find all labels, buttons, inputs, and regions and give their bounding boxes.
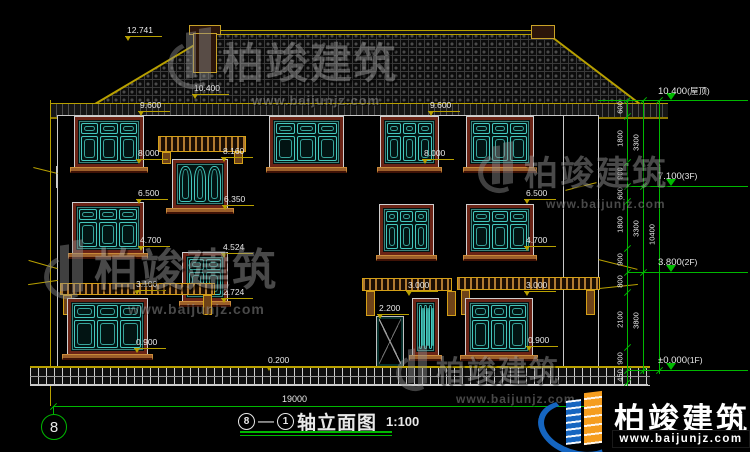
balcony-window bbox=[173, 160, 227, 208]
window-lattice bbox=[79, 121, 139, 163]
chain-dim-text: 600 bbox=[616, 93, 625, 123]
dim-line bbox=[659, 100, 660, 374]
dim-label: 8.000 bbox=[422, 149, 454, 160]
window-lattice bbox=[417, 303, 434, 351]
window-pane bbox=[429, 305, 432, 349]
window-3f-center-left bbox=[270, 117, 343, 167]
window-pane bbox=[74, 320, 95, 348]
left-bracket bbox=[33, 167, 57, 174]
window-pane bbox=[120, 123, 137, 134]
dim-line bbox=[627, 100, 628, 386]
chain-dim-text: 1800 bbox=[616, 209, 625, 239]
watermark-logo-icon bbox=[44, 240, 90, 302]
window-pane bbox=[510, 123, 527, 134]
window-pane bbox=[297, 123, 316, 134]
overall-dim-line bbox=[53, 406, 598, 407]
dim-label: 9.600 bbox=[428, 101, 460, 112]
sill bbox=[376, 255, 437, 261]
window-pane bbox=[491, 305, 508, 318]
window-lattice bbox=[384, 209, 429, 251]
axis-bubble-8: 8 bbox=[41, 414, 67, 440]
ridge-ornament bbox=[531, 25, 555, 39]
watermark-right: 柏竣建筑 www.baijunjz.com bbox=[524, 146, 668, 211]
window-pane bbox=[415, 211, 427, 222]
sill bbox=[377, 167, 442, 173]
canopy-post bbox=[586, 290, 595, 315]
title-scale: 1:100 bbox=[386, 414, 419, 429]
window-pane bbox=[81, 123, 98, 134]
canopy-post bbox=[366, 291, 375, 316]
window-pane bbox=[400, 224, 412, 249]
window-pane bbox=[318, 136, 337, 161]
window-pane bbox=[74, 305, 95, 318]
logo-building-icon bbox=[566, 399, 581, 445]
dim-label: 0.900 bbox=[134, 338, 166, 349]
window-pane bbox=[100, 123, 117, 134]
dim-label: 2.200 bbox=[377, 304, 409, 315]
window-lattice bbox=[177, 164, 223, 204]
window-pane bbox=[509, 320, 526, 349]
dim-label: 0.900 bbox=[526, 336, 558, 347]
window-pane bbox=[472, 305, 489, 318]
dim-label: 8.000 bbox=[136, 149, 168, 160]
sill bbox=[70, 167, 148, 173]
brand-url: www.baijunjz.com bbox=[612, 430, 750, 448]
window-pane bbox=[403, 123, 417, 134]
chain-dim-text: 3800 bbox=[632, 306, 641, 336]
chain-dim-text: 450 bbox=[616, 361, 625, 391]
window-lattice bbox=[470, 303, 528, 351]
window-pane bbox=[400, 211, 412, 222]
window-lattice bbox=[274, 121, 339, 163]
title-bubble-left: 8 bbox=[238, 413, 255, 430]
window-pane bbox=[276, 136, 295, 161]
watermark-bottom: 柏竣建筑 www.baijunjz.com bbox=[436, 348, 576, 406]
window-pane bbox=[472, 320, 489, 349]
window-pane bbox=[419, 305, 422, 349]
elevation-drawing-canvas: 12.741 10.400 9.600 9.600 8.160 8.000 8.… bbox=[0, 0, 750, 452]
window-pane bbox=[97, 320, 118, 348]
window-3f-left bbox=[75, 117, 143, 167]
title-underline-2 bbox=[240, 435, 392, 436]
window-pane bbox=[386, 224, 398, 249]
window-pane bbox=[415, 224, 427, 249]
axis-leader bbox=[53, 406, 54, 414]
dim-label: 3.000 bbox=[406, 281, 438, 292]
watermark-left: 柏竣建筑 www.baijunjz.com bbox=[94, 234, 278, 317]
logo-building-icon bbox=[584, 391, 602, 445]
dim-label: 3.000 bbox=[524, 281, 556, 292]
window-pane bbox=[386, 211, 398, 222]
window-pane bbox=[492, 123, 509, 134]
watermark-logo-icon bbox=[396, 346, 432, 392]
chain-dim-text: 800 bbox=[616, 267, 625, 297]
window-pane bbox=[81, 136, 98, 161]
dim-label: 9.600 bbox=[138, 101, 170, 112]
chain-dim-text: 10400 bbox=[648, 220, 657, 250]
window-pane bbox=[473, 224, 490, 249]
window-pane bbox=[403, 136, 417, 161]
canopy-post bbox=[447, 291, 456, 316]
window-pane bbox=[424, 305, 427, 349]
window-lattice bbox=[471, 209, 529, 251]
window-1f-right bbox=[466, 299, 532, 355]
dim-label: 0.200 bbox=[266, 356, 298, 367]
window-pane bbox=[387, 123, 401, 134]
sill bbox=[463, 255, 537, 261]
window-pane bbox=[179, 166, 192, 202]
window-pane bbox=[318, 123, 337, 134]
window-pane bbox=[99, 209, 117, 220]
watermark-top: 柏竣建筑 www.baijunjz.com bbox=[222, 30, 398, 108]
sill bbox=[266, 167, 347, 173]
dim-label: 4.700 bbox=[524, 236, 556, 247]
watermark-logo-icon bbox=[168, 28, 220, 88]
window-pane bbox=[119, 209, 137, 220]
window-pane bbox=[491, 320, 508, 349]
watermark-logo-icon bbox=[478, 142, 520, 192]
overall-dim-text: 19000 bbox=[282, 394, 307, 404]
window-pane bbox=[509, 305, 526, 318]
window-2f-center bbox=[380, 205, 433, 255]
chain-dim-text: 2100 bbox=[616, 304, 625, 334]
window-pane bbox=[120, 136, 137, 161]
window-pane bbox=[473, 123, 490, 134]
window-pane bbox=[276, 123, 295, 134]
window-pane bbox=[100, 136, 117, 161]
chain-dim-text: 3300 bbox=[632, 214, 641, 244]
window-pane bbox=[208, 166, 221, 202]
left-bracket-edge bbox=[56, 166, 57, 188]
dim-label: 8.160 bbox=[221, 147, 253, 158]
window-pane bbox=[418, 123, 432, 134]
title-bubble-right: 1 bbox=[277, 413, 294, 430]
title-separator: — bbox=[258, 413, 274, 431]
window-pane bbox=[473, 211, 490, 222]
title-underline bbox=[240, 431, 392, 433]
window-pane bbox=[492, 211, 509, 222]
window-pane bbox=[297, 136, 316, 161]
window-pane bbox=[387, 136, 401, 161]
window-pane bbox=[510, 211, 527, 222]
dim-label: 6.350 bbox=[222, 195, 254, 206]
dim-label: 6.500 bbox=[136, 189, 168, 200]
window-pane bbox=[194, 166, 207, 202]
window-pane bbox=[79, 209, 97, 220]
window-pane bbox=[492, 224, 509, 249]
dim-label: 12.741 bbox=[125, 26, 162, 37]
sill bbox=[62, 354, 153, 360]
dim-line bbox=[643, 100, 644, 374]
